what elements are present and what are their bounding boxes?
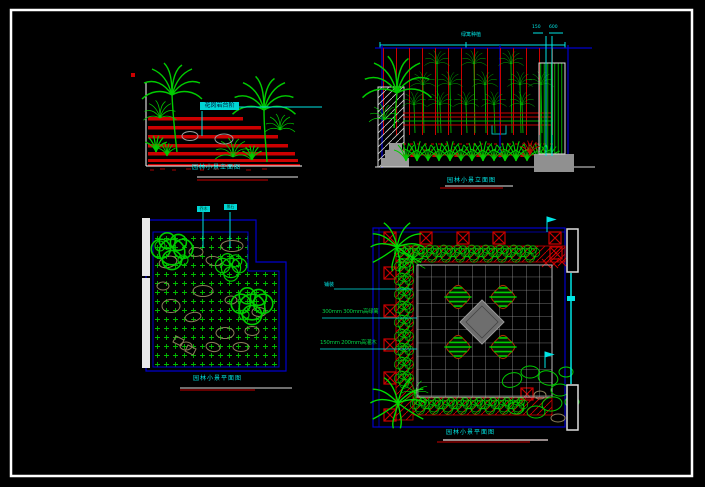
hedge-annotation-1: 300mm 300mm高绿篱 — [322, 310, 378, 316]
panel-plan-right — [320, 217, 579, 442]
planting-label: 绿篱种植 — [461, 33, 481, 38]
datum-tick — [131, 73, 135, 77]
caption-plan-right: 园林小景平面图 — [446, 430, 495, 436]
panel-plan-left — [142, 212, 292, 390]
cad-drawing — [0, 0, 705, 487]
dim-label-right: 600 — [549, 26, 558, 31]
opening-marker — [567, 296, 575, 301]
cad-canvas: 花岗岩台阶 园林小景立面图 绿篱种植 150 600 园林小景立面图 乔木 景石… — [0, 0, 705, 487]
panel-elevation-left — [131, 63, 322, 180]
wall-segment — [567, 385, 578, 430]
leader-line — [202, 107, 322, 136]
bamboo-pedestal — [534, 154, 574, 172]
dim-label-left: 150 — [532, 26, 541, 31]
hedge-annotation-2: 150mm 200mm高灌木 — [320, 341, 376, 347]
material-callout: 花岗岩台阶 — [200, 102, 239, 110]
plan-flag-rocks: 景石 — [224, 204, 237, 210]
caption-plan-left: 园林小景平面图 — [193, 376, 242, 382]
drawing-frame — [11, 10, 692, 476]
wall-segment — [142, 278, 150, 368]
wall-segment — [142, 218, 150, 276]
plan-flag-trees: 乔木 — [197, 206, 210, 212]
caption-elevation-right: 园林小景立面图 — [447, 178, 496, 184]
panel-elevation-right — [363, 33, 596, 188]
wall-segment — [567, 229, 578, 272]
trellis-posts — [383, 48, 553, 135]
caption-elevation-left: 园林小景立面图 — [192, 165, 241, 171]
paving-annotation: 铺装 — [324, 283, 334, 288]
terraced-steps — [148, 117, 300, 166]
